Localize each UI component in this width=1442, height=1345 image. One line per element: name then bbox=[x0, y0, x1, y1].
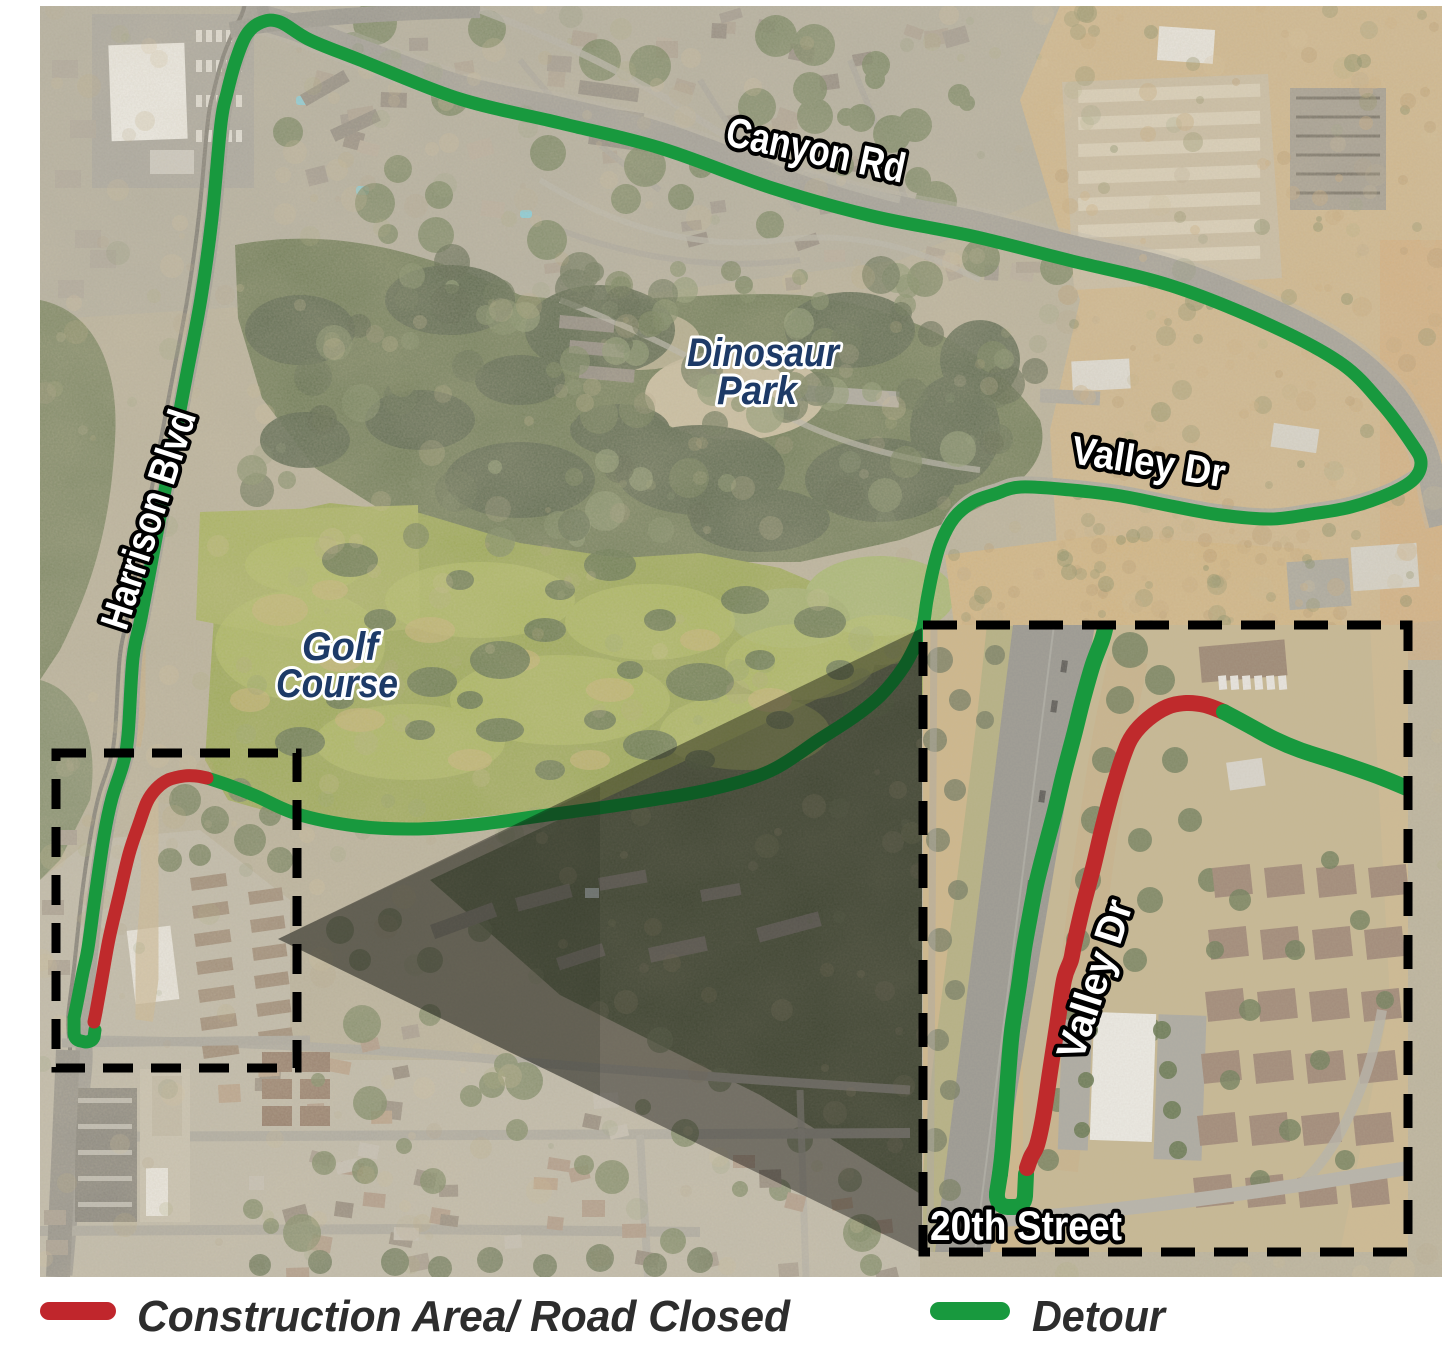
svg-text:Course: Course bbox=[276, 662, 398, 706]
svg-text:Park: Park bbox=[717, 369, 799, 413]
svg-text:Construction Area/ Road Closed: Construction Area/ Road Closed bbox=[137, 1292, 791, 1341]
svg-text:Detour: Detour bbox=[1032, 1292, 1168, 1341]
svg-text:20th Street: 20th Street bbox=[930, 1202, 1122, 1249]
